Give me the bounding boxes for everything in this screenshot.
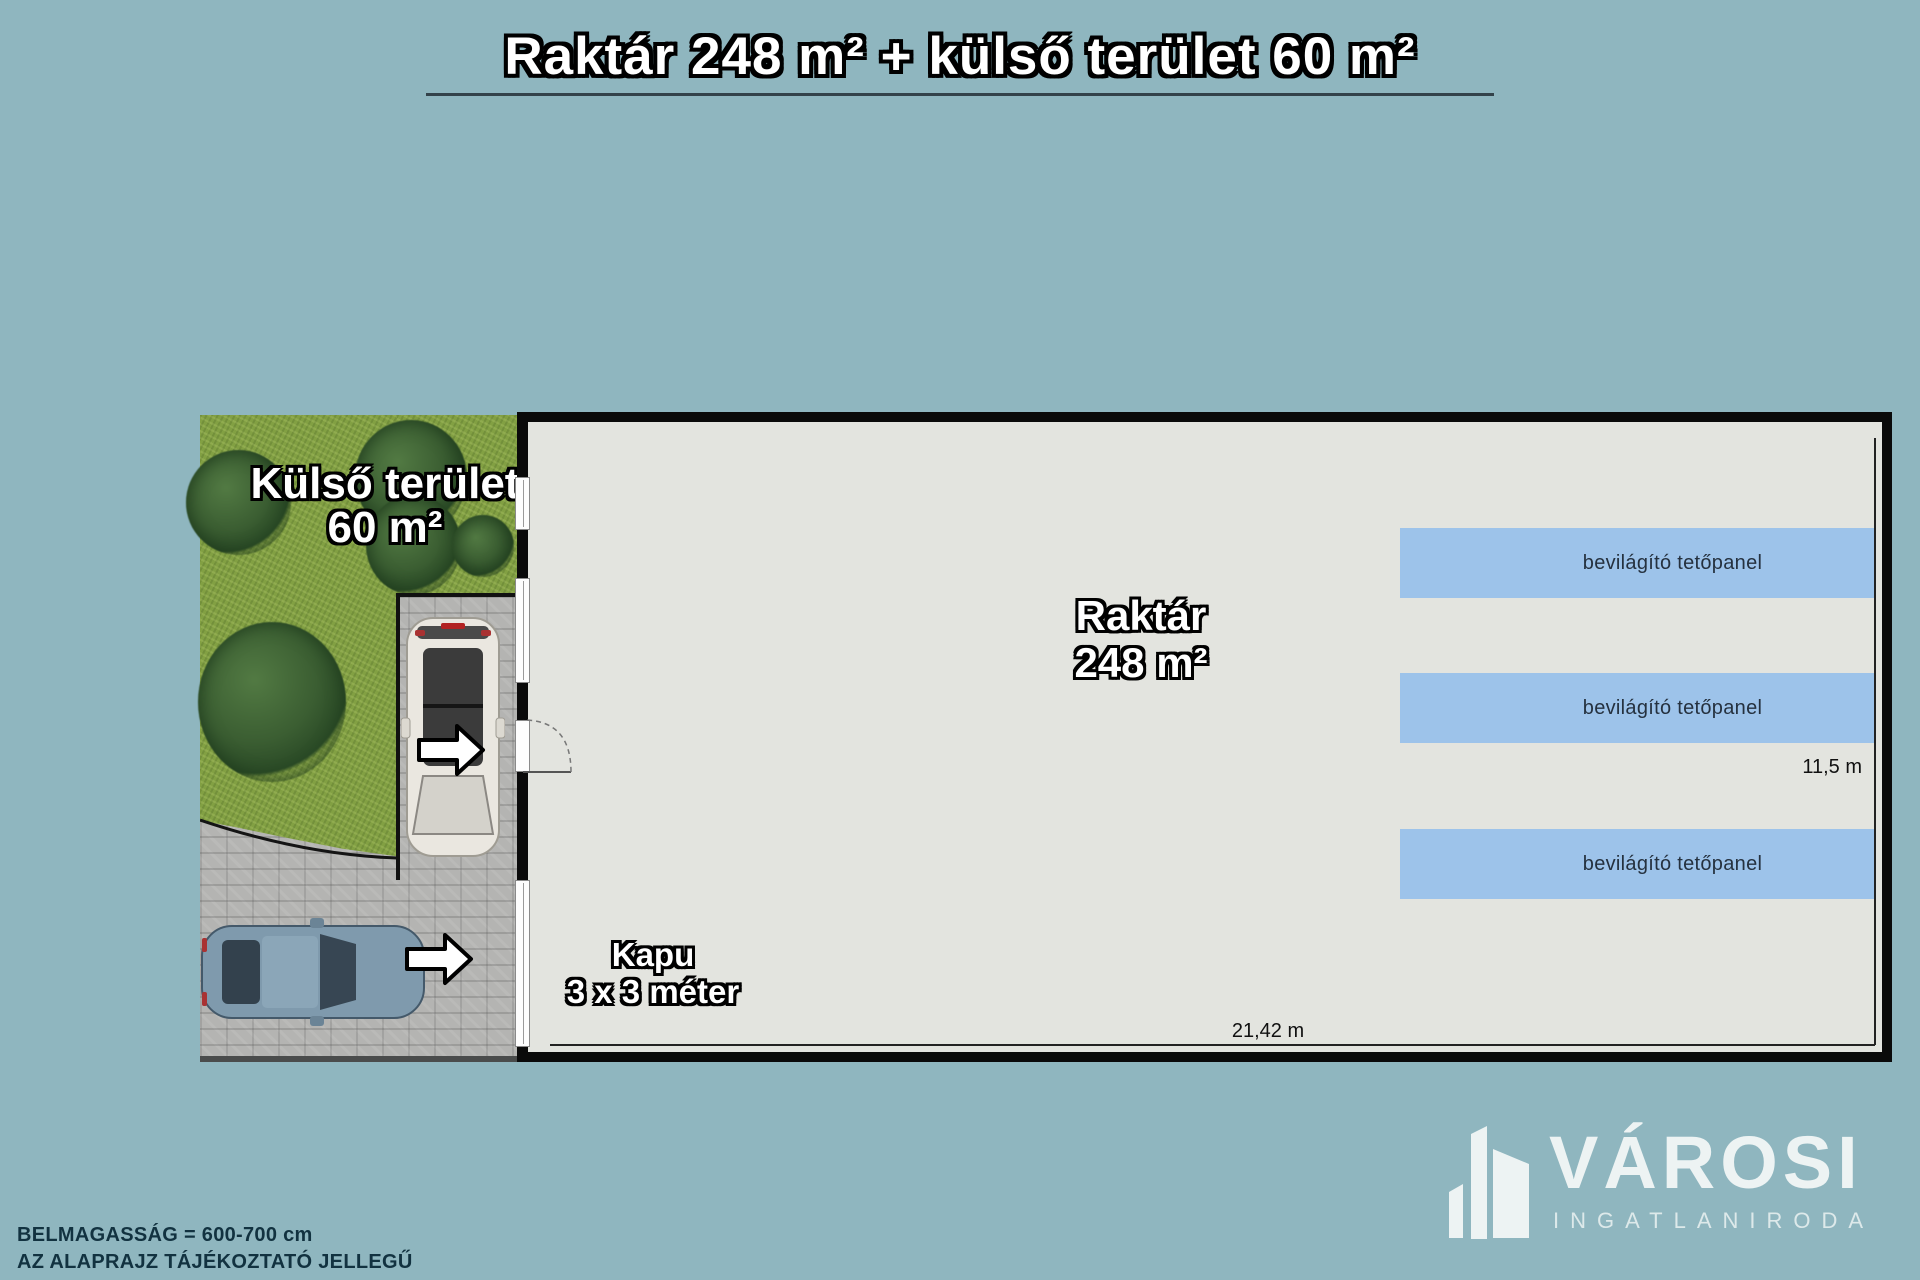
dimension-line-horizontal — [550, 1044, 1875, 1046]
depth-dimension-label: 11,5 m — [1762, 756, 1862, 779]
brand-name: VÁROSI — [1549, 1120, 1863, 1205]
window — [515, 578, 530, 683]
wall-left-segment — [517, 530, 528, 578]
dimension-line-vertical — [1874, 438, 1876, 1045]
skylight-panel-label: bevilágító tetőpanel — [1583, 697, 1762, 720]
floor-plan-page: Raktár 248 m² + külső terület 60 m² Küls… — [0, 0, 1920, 1280]
width-dimension-label: 21,42 m — [1168, 1020, 1368, 1043]
gate-label: Kapu 3 x 3 méter — [503, 936, 803, 1010]
brand-logo: VÁROSI INGATLANIRODA — [1445, 1112, 1895, 1242]
skylight-panel-label: bevilágító tetőpanel — [1583, 853, 1762, 876]
skylight-panel: bevilágító tetőpanel — [1400, 528, 1875, 598]
footnotes: BELMAGASSÁG = 600-700 cm AZ ALAPRAJZ TÁJ… — [17, 1222, 413, 1276]
parking-pad-border-top — [396, 593, 518, 597]
tree-icon — [198, 622, 346, 782]
blue-car — [198, 918, 428, 1026]
outdoor-area-label: Külső terület 60 m² — [225, 462, 545, 550]
window — [515, 477, 530, 530]
outdoor-area-name: Külső terület — [225, 462, 545, 506]
outdoor-bottom-edge — [200, 1056, 518, 1062]
outdoor-area-size: 60 m² — [225, 506, 545, 550]
skylight-panel-label: bevilágító tetőpanel — [1583, 552, 1762, 575]
arrow-right-icon — [405, 930, 475, 988]
warehouse-label: Raktár 248 m² — [991, 592, 1291, 686]
wall-left-segment — [517, 772, 528, 880]
parking-pad-border-left — [396, 593, 400, 880]
door-swing — [515, 715, 595, 785]
wall-left-segment — [517, 1047, 528, 1062]
gate-name: Kapu — [503, 936, 803, 973]
wall-top — [517, 412, 1892, 422]
skylight-panel: bevilágító tetőpanel — [1400, 673, 1875, 743]
gate-size: 3 x 3 méter — [503, 973, 803, 1010]
brand-subtitle: INGATLANIRODA — [1553, 1208, 1874, 1234]
arrow-right-icon — [417, 722, 487, 778]
title-underline — [426, 93, 1494, 96]
wall-bottom — [517, 1052, 1892, 1062]
skylight-panel: bevilágító tetőpanel — [1400, 829, 1875, 899]
wall-left-segment — [517, 412, 528, 477]
wall-right — [1882, 412, 1892, 1062]
warehouse-size: 248 m² — [991, 639, 1291, 686]
disclaimer-note: AZ ALAPRAJZ TÁJÉKOZTATÓ JELLEGŰ — [17, 1249, 413, 1276]
warehouse-name: Raktár — [991, 592, 1291, 639]
page-title: Raktár 248 m² + külső terület 60 m² — [0, 26, 1920, 87]
ceiling-height-note: BELMAGASSÁG = 600-700 cm — [17, 1222, 413, 1249]
buildings-icon — [1445, 1118, 1537, 1244]
